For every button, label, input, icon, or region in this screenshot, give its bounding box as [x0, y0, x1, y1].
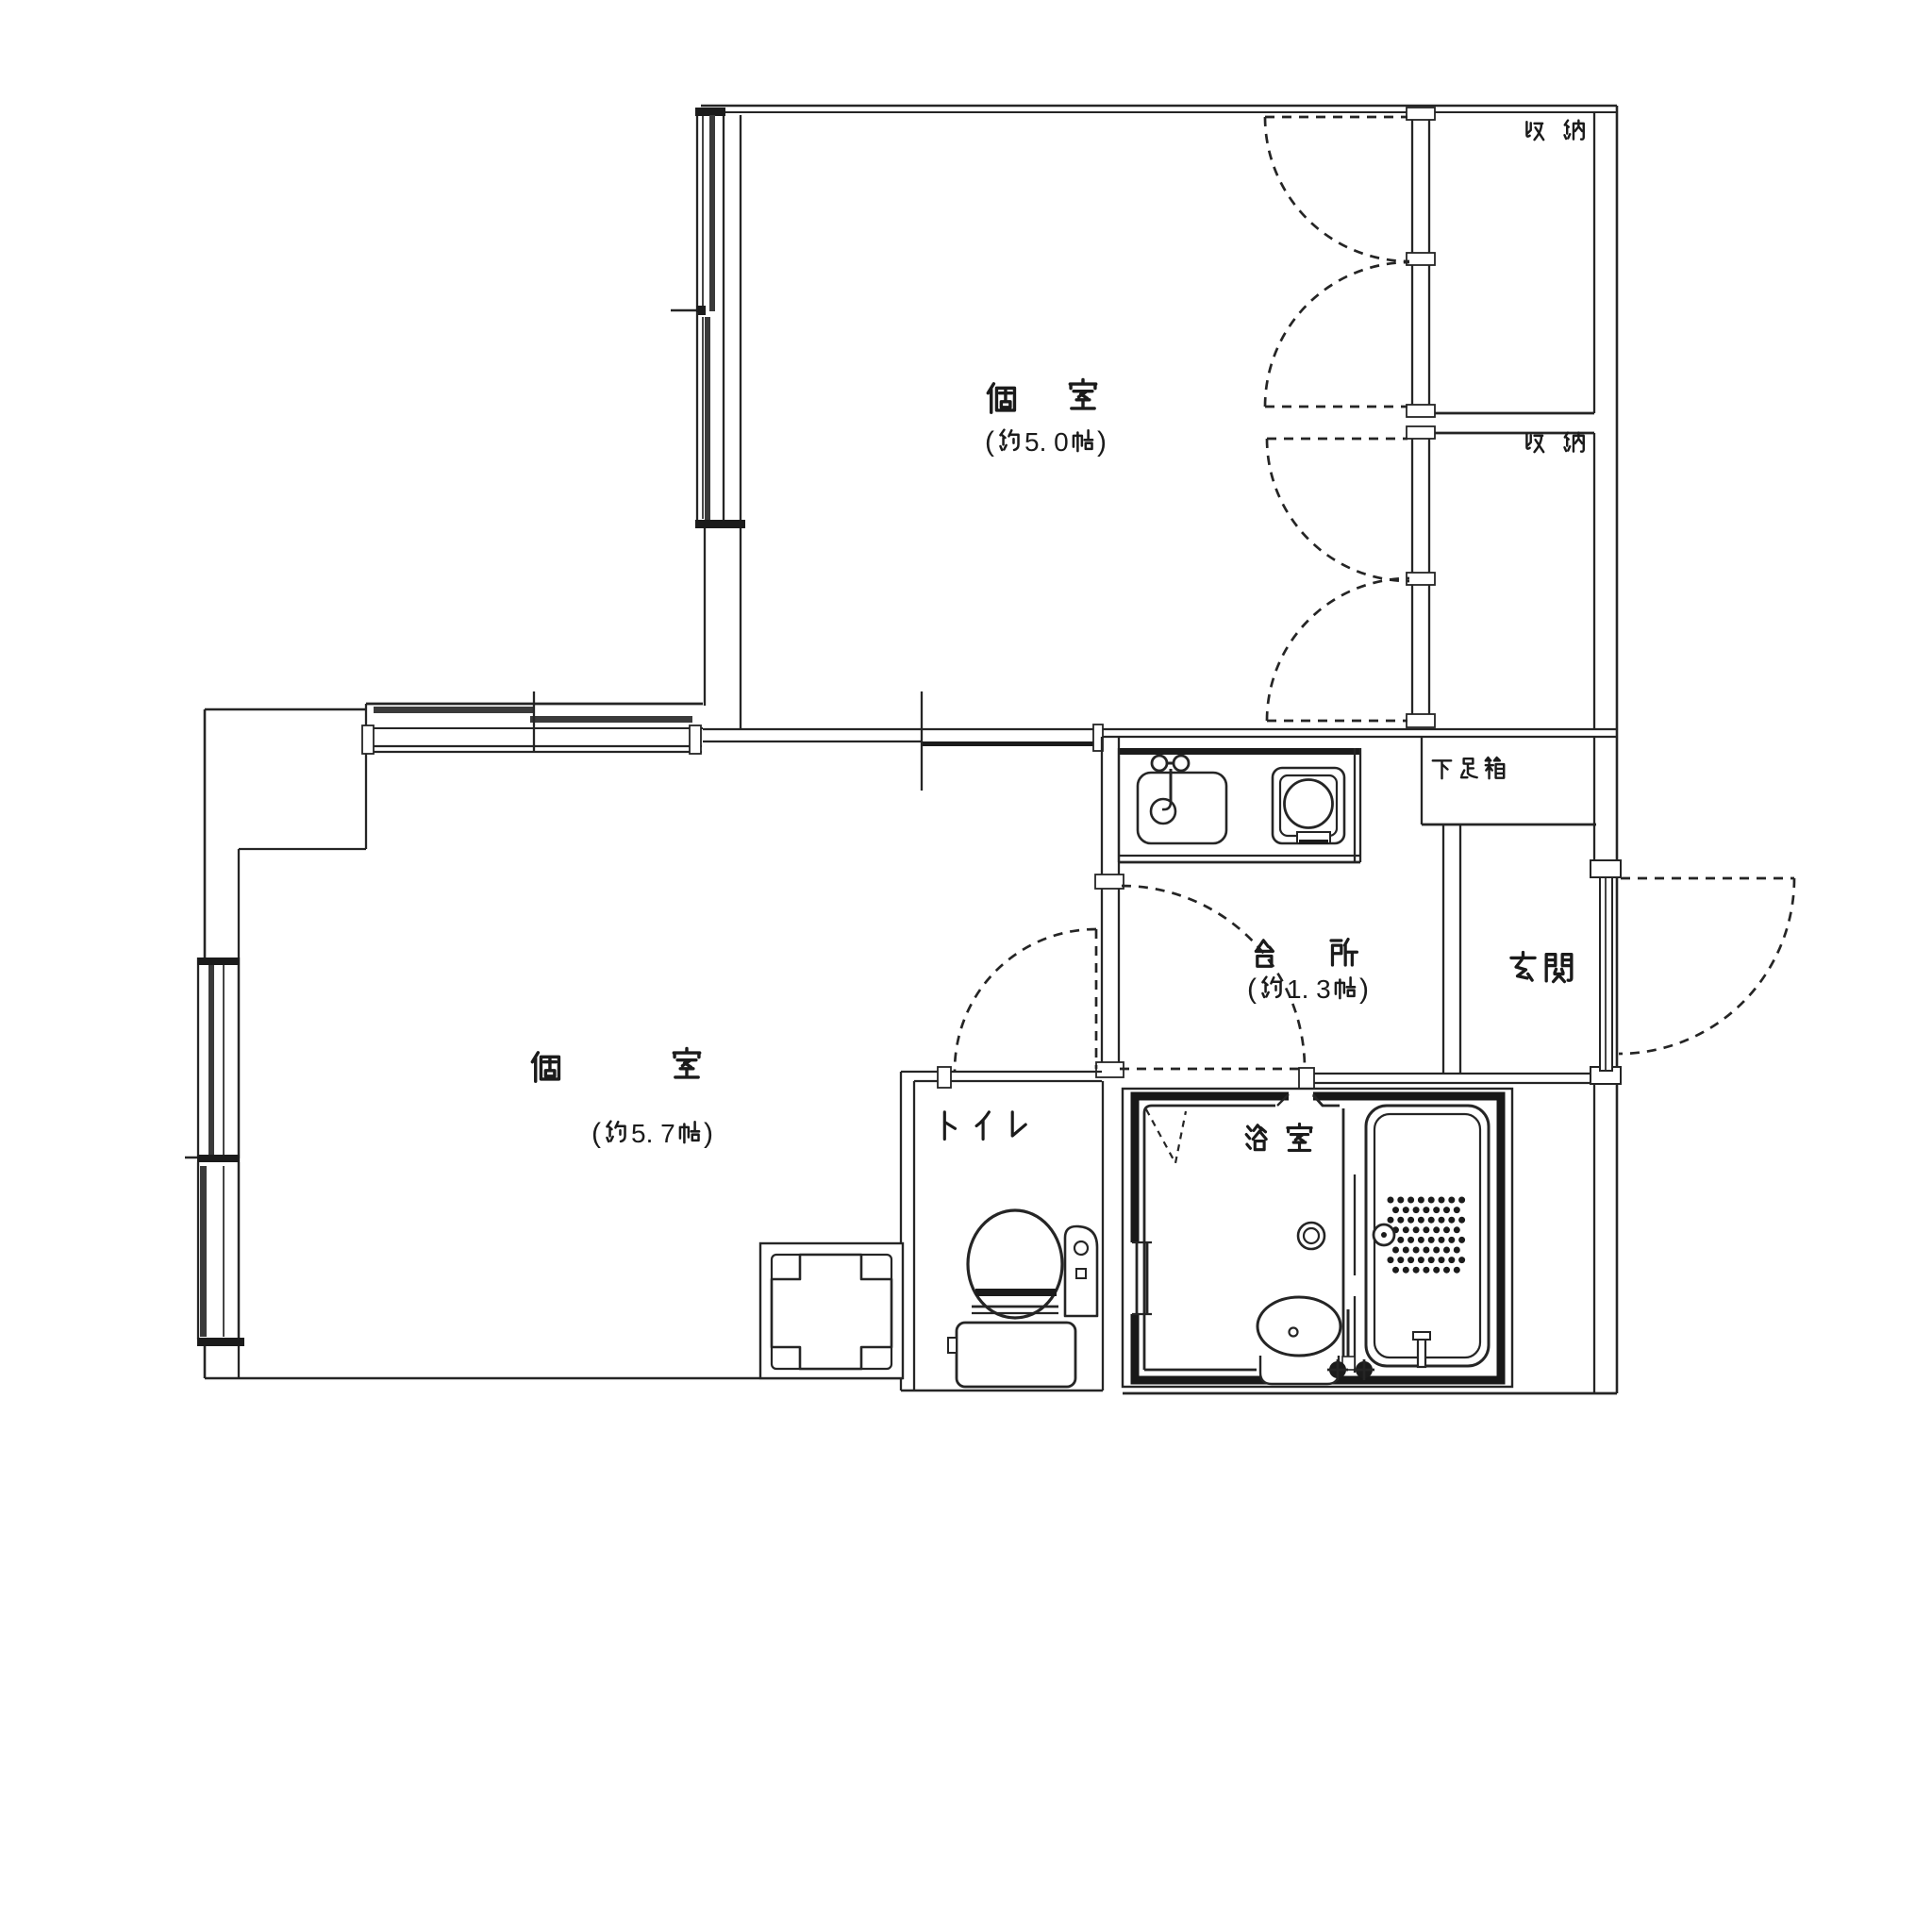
svg-text:): )	[704, 1118, 713, 1149]
svg-text:1. 3: 1. 3	[1287, 974, 1331, 1004]
svg-text:): )	[1097, 426, 1107, 458]
svg-text:5. 7: 5. 7	[631, 1119, 675, 1148]
svg-text:(: (	[1247, 974, 1257, 1005]
svg-text:): )	[1359, 974, 1369, 1005]
svg-text:5. 0: 5. 0	[1024, 427, 1069, 457]
svg-text:(: (	[591, 1118, 601, 1149]
svg-text:(: (	[985, 426, 994, 458]
